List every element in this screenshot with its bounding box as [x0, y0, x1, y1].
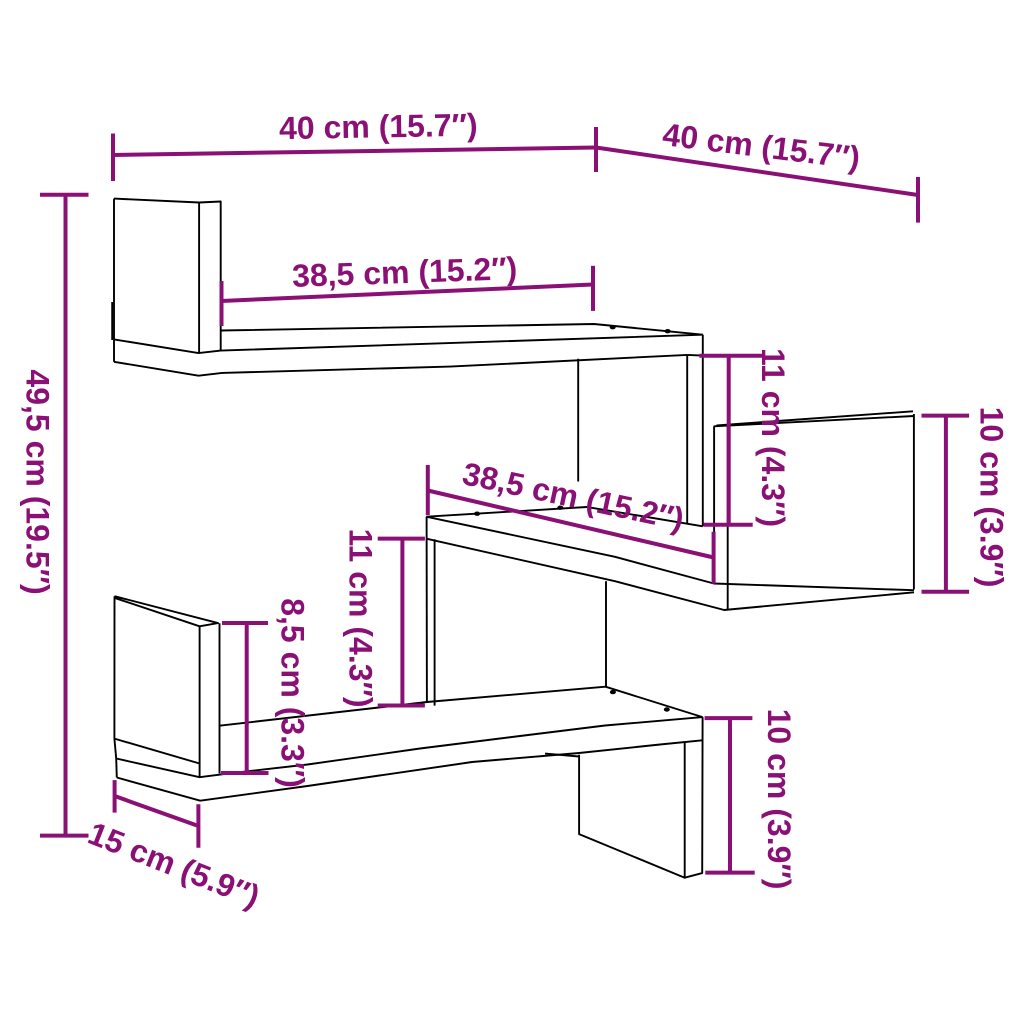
svg-text:10 cm (3.9″): 10 cm (3.9″): [974, 407, 1010, 588]
svg-text:8,5 cm (3.3″): 8,5 cm (3.3″): [275, 598, 311, 788]
svg-text:11 cm (4.3″): 11 cm (4.3″): [755, 348, 791, 527]
svg-text:40 cm (15.7″): 40 cm (15.7″): [279, 107, 478, 146]
svg-text:49,5 cm (19.5″): 49,5 cm (19.5″): [20, 369, 56, 594]
svg-text:10 cm (3.9″): 10 cm (3.9″): [761, 709, 797, 890]
svg-text:11 cm (4.3″): 11 cm (4.3″): [343, 529, 379, 708]
